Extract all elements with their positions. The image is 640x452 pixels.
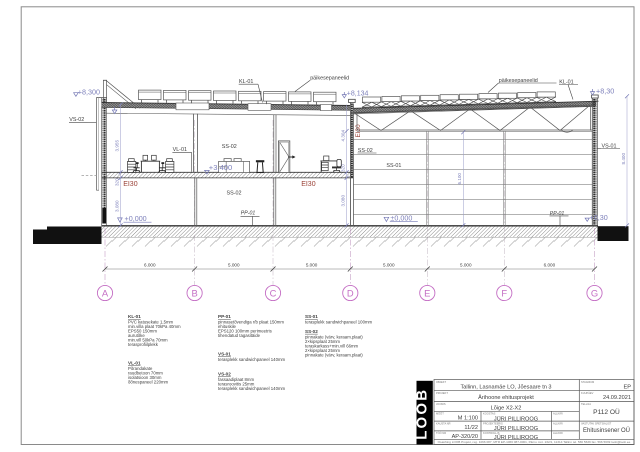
svg-text:P112 OÜ: P112 OÜ (593, 408, 620, 416)
svg-text:Ehitusinsener OÜ: Ehitusinsener OÜ (583, 427, 630, 434)
svg-text:VL-01: VL-01 (128, 360, 141, 365)
svg-text:PROJEKT: PROJEKT (436, 391, 448, 395)
svg-text:±0,000: ±0,000 (390, 213, 412, 222)
svg-text:3.955: 3.955 (114, 140, 119, 152)
svg-text:TELLIJA: TELLIJA (581, 402, 591, 406)
svg-text:320: 320 (340, 164, 345, 172)
svg-text:OBJEKT: OBJEKT (436, 380, 447, 384)
svg-text:PP-01: PP-01 (241, 211, 256, 217)
svg-text:Lõige X2-X2: Lõige X2-X2 (491, 406, 522, 412)
svg-text:+0,30: +0,30 (590, 213, 608, 222)
svg-text:KAUSTA NR: KAUSTA NR (436, 422, 451, 426)
svg-text:õõnespaneel 220mm: õõnespaneel 220mm (128, 379, 169, 384)
svg-text:B: B (191, 287, 197, 298)
svg-text:6.000: 6.000 (544, 263, 556, 268)
svg-text:VASTUTAV SPETSIALIST: VASTUTAV SPETSIALIST (581, 422, 612, 426)
svg-text:+8,134: +8,134 (347, 91, 369, 98)
svg-text:A: A (102, 287, 109, 298)
svg-text:+8,30: +8,30 (596, 86, 614, 95)
svg-text:EP: EP (624, 384, 632, 390)
svg-text:ALLKIRI: ALLKIRI (553, 431, 563, 435)
svg-text:5.000: 5.000 (306, 263, 318, 268)
svg-text:D: D (347, 287, 354, 298)
svg-text:JÜRI PILLIROOG: JÜRI PILLIROOG (494, 425, 538, 432)
svg-text:terasplekk sandwichpaneel 140m: terasplekk sandwichpaneel 140mm (218, 386, 286, 391)
svg-text:EI30: EI30 (301, 181, 316, 188)
svg-text:VS-02: VS-02 (218, 371, 231, 376)
svg-text:tihendatud tagasitäide: tihendatud tagasitäide (218, 333, 261, 338)
svg-text:24.09.2021: 24.09.2021 (603, 395, 631, 401)
svg-text:KL-01: KL-01 (128, 314, 141, 319)
svg-text:C: C (270, 287, 277, 298)
svg-text:+8,300: +8,300 (78, 87, 100, 96)
svg-text:5.000: 5.000 (460, 263, 472, 268)
svg-text:Osaühing LOOB Projekt, reg. 10: Osaühing LOOB Projekt, reg. 1066 087, MT… (438, 440, 631, 444)
svg-text:320: 320 (114, 178, 119, 186)
svg-text:PP-01: PP-01 (218, 314, 231, 319)
svg-text:G: G (591, 287, 598, 298)
svg-text:ALLKIRI: ALLKIRI (553, 422, 563, 426)
svg-text:ALLKIRI: ALLKIRI (553, 412, 563, 416)
svg-text:STAADIUM: STAADIUM (581, 380, 594, 384)
svg-text:LOOB: LOOB (413, 388, 430, 440)
svg-text:3.080: 3.080 (114, 200, 119, 212)
svg-text:5.000: 5.000 (383, 263, 395, 268)
svg-text:EI30: EI30 (123, 181, 138, 188)
svg-text:KOOSTAS: KOOSTAS (483, 412, 496, 416)
svg-text:SS-02: SS-02 (305, 329, 318, 334)
svg-text:VS-01: VS-01 (218, 351, 231, 356)
svg-text:+0,000: +0,000 (125, 214, 147, 223)
svg-text:Tallinn, Lasnamäe LO, Jõesaare: Tallinn, Lasnamäe LO, Jõesaare tn 3 (460, 384, 551, 390)
svg-text:11/22: 11/22 (464, 425, 478, 431)
svg-text:SS-02: SS-02 (222, 144, 237, 150)
svg-text:KUUPÄEV: KUUPÄEV (581, 391, 594, 395)
svg-text:TÖÖ NR: TÖÖ NR (436, 431, 446, 435)
svg-text:5.000: 5.000 (228, 263, 240, 268)
svg-text:+3,400: +3,400 (209, 163, 232, 172)
svg-text:SS-01: SS-01 (386, 163, 401, 169)
svg-text:EI30: EI30 (355, 124, 362, 138)
svg-text:terasplekk sandwichpaneel 140m: terasplekk sandwichpaneel 140mm (218, 357, 286, 362)
svg-text:SS-02: SS-02 (227, 191, 242, 197)
svg-text:E: E (424, 287, 430, 298)
svg-text:pinnakate (värv, keraam.plaat): pinnakate (värv, keraam.plaat) (305, 352, 363, 357)
svg-text:JÜRI PILLIROOG: JÜRI PILLIROOG (494, 415, 538, 422)
svg-text:päikesepaneelid: päikesepaneelid (310, 75, 349, 81)
svg-text:4.304: 4.304 (340, 130, 345, 142)
svg-text:8.400: 8.400 (621, 153, 626, 165)
svg-text:terasplekk sandwichpaneel 100m: terasplekk sandwichpaneel 100mm (305, 319, 373, 324)
svg-text:6.000: 6.000 (144, 263, 156, 268)
svg-text:SS-01: SS-01 (305, 314, 318, 319)
svg-text:F: F (501, 287, 507, 298)
svg-text:M 1:100: M 1:100 (458, 415, 478, 421)
svg-text:PROJEKTEERIS: PROJEKTEERIS (483, 422, 503, 426)
svg-text:JOONIS: JOONIS (436, 402, 446, 406)
svg-text:6.100: 6.100 (457, 173, 462, 185)
svg-text:3.080: 3.080 (340, 195, 345, 207)
svg-text:Ärihoone ehitusprojekt: Ärihoone ehitusprojekt (478, 394, 534, 401)
svg-text:terasprofiilplekk: terasprofiilplekk (128, 342, 159, 347)
